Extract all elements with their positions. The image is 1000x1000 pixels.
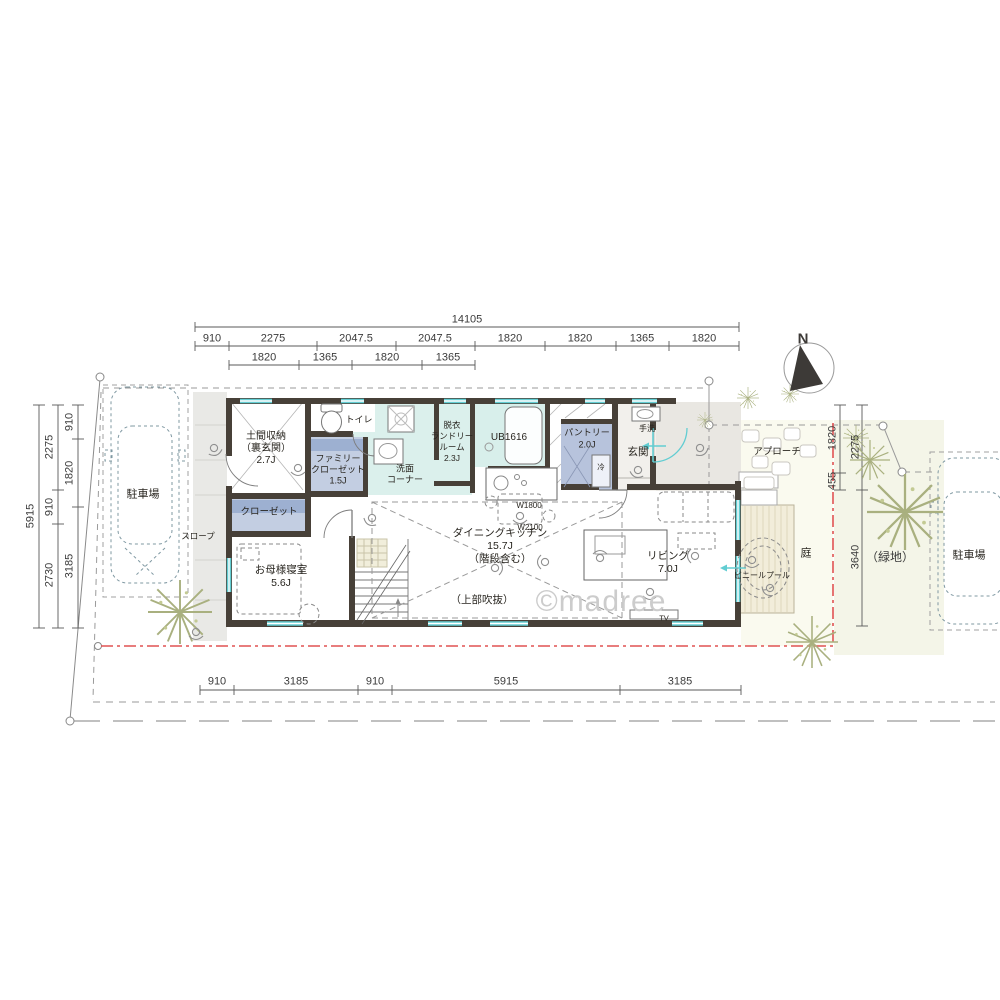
floorplan-canvas: 14105 910 2275 2047.5 2047.5 1820 1820 1… xyxy=(0,0,1000,1000)
label-living-1: リビング xyxy=(647,551,689,562)
dim-top-total: 14105 xyxy=(452,315,483,326)
dim-left-i2: 3185 xyxy=(65,554,76,578)
label-datsui-1: 脱衣 xyxy=(443,421,460,430)
label-famiclo-1: ファミリー xyxy=(315,455,360,464)
label-pantry-1: パントリー xyxy=(564,429,609,438)
dim-top-r1-2: 2047.5 xyxy=(339,334,373,345)
label-pantry-2: 2.0J xyxy=(578,441,595,450)
label-famiclo-2: クローゼット xyxy=(311,466,365,475)
label-bath: UB1616 xyxy=(491,433,527,443)
dim-left-m2: 2730 xyxy=(45,563,56,587)
label-pool: ビニールプール xyxy=(734,572,790,580)
label-datsui-2: ランドリー xyxy=(431,432,474,441)
label-dk-2: 15.7J xyxy=(487,541,513,552)
label-counter-w1800: W1800 xyxy=(516,502,541,510)
label-doma-2: （裏玄関） xyxy=(241,444,291,454)
dim-top-r2-2: 1820 xyxy=(375,353,399,364)
dim-bottom-4: 3185 xyxy=(668,677,692,688)
dim-left-i1: 1820 xyxy=(65,461,76,485)
label-famiclo-3: 1.5J xyxy=(329,477,346,486)
entrance-porch xyxy=(656,402,741,491)
north-arrow-icon xyxy=(784,343,834,393)
label-dk-4: （上部吹抜） xyxy=(451,595,514,606)
label-fridge: 冷 xyxy=(597,463,605,471)
label-dk-3: （階段含む） xyxy=(469,554,532,565)
dim-top-r2-1: 1365 xyxy=(313,353,337,364)
dim-top-r2-0: 1820 xyxy=(252,353,276,364)
watermark: ©madree xyxy=(536,587,667,617)
label-island-w2100: W2100 xyxy=(517,524,542,532)
label-closet: クローゼット xyxy=(240,507,297,517)
label-datsui-3: ルーム xyxy=(439,443,464,452)
dim-left-i0: 910 xyxy=(65,413,76,431)
green-belt-note: （緑地） xyxy=(866,551,914,563)
dim-right-o0: 2275 xyxy=(851,435,862,459)
north-label: N xyxy=(798,332,809,347)
label-bedroom-1: お母様寝室 xyxy=(255,565,308,576)
dim-top-r1-7: 1820 xyxy=(692,334,716,345)
dim-top-r1-0: 910 xyxy=(203,334,221,345)
dim-left-outer: 5915 xyxy=(26,504,37,528)
dim-bottom-3: 5915 xyxy=(494,677,518,688)
label-slope: スロープ xyxy=(181,532,215,541)
dim-top-r1-6: 1365 xyxy=(630,334,654,345)
label-datsui-4: 2.3J xyxy=(444,454,460,463)
label-parking-left: 駐車場 xyxy=(127,490,160,501)
dim-top-r2-3: 1365 xyxy=(436,353,460,364)
label-approach: アプローチ xyxy=(753,447,801,457)
dim-top-r1-1: 2275 xyxy=(261,334,285,345)
label-doma-1: 土間収納 xyxy=(246,432,286,442)
label-senmen-1: 洗面 xyxy=(396,465,414,474)
dim-right-i1: 455 xyxy=(828,472,839,490)
label-senmen-2: コーナー xyxy=(387,476,423,485)
label-bedroom-2: 5.6J xyxy=(271,578,291,589)
dim-top-r1-3: 2047.5 xyxy=(418,334,452,345)
dim-left-m1: 910 xyxy=(45,498,56,516)
label-tearai: 手洗 xyxy=(639,425,655,433)
stairs xyxy=(355,539,410,624)
dim-bottom-0: 910 xyxy=(208,677,226,688)
dim-bottom-2: 910 xyxy=(366,677,384,688)
dim-top-r1-5: 1820 xyxy=(568,334,592,345)
dim-bottom-1: 3185 xyxy=(284,677,308,688)
dim-top-r1-4: 1820 xyxy=(498,334,522,345)
label-doma-3: 2.7J xyxy=(257,456,276,466)
label-genkan: 玄関 xyxy=(628,447,649,458)
label-parking-right: 駐車場 xyxy=(953,551,986,562)
dim-left-m0: 2275 xyxy=(45,435,56,459)
label-living-2: 7.0J xyxy=(658,564,678,575)
label-garden: 庭 xyxy=(801,549,812,560)
dim-right-o1: 3640 xyxy=(851,545,862,569)
label-toilet: トイレ xyxy=(345,416,372,425)
dim-right-i0: 1820 xyxy=(828,426,839,450)
